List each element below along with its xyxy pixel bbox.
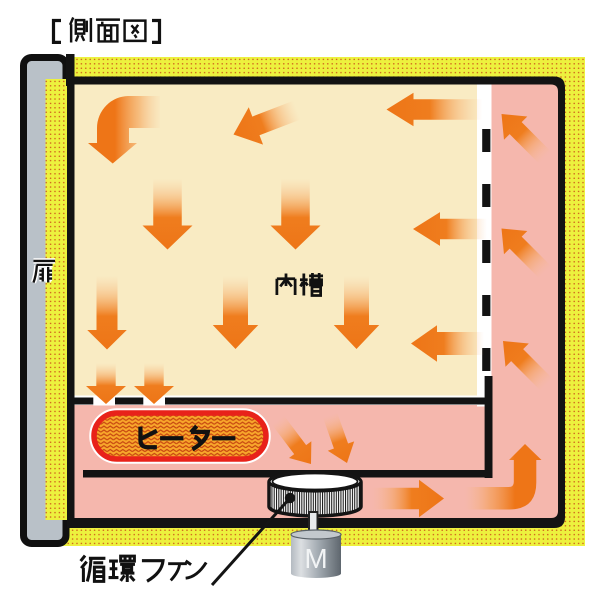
svg-text:M: M [304,543,327,574]
